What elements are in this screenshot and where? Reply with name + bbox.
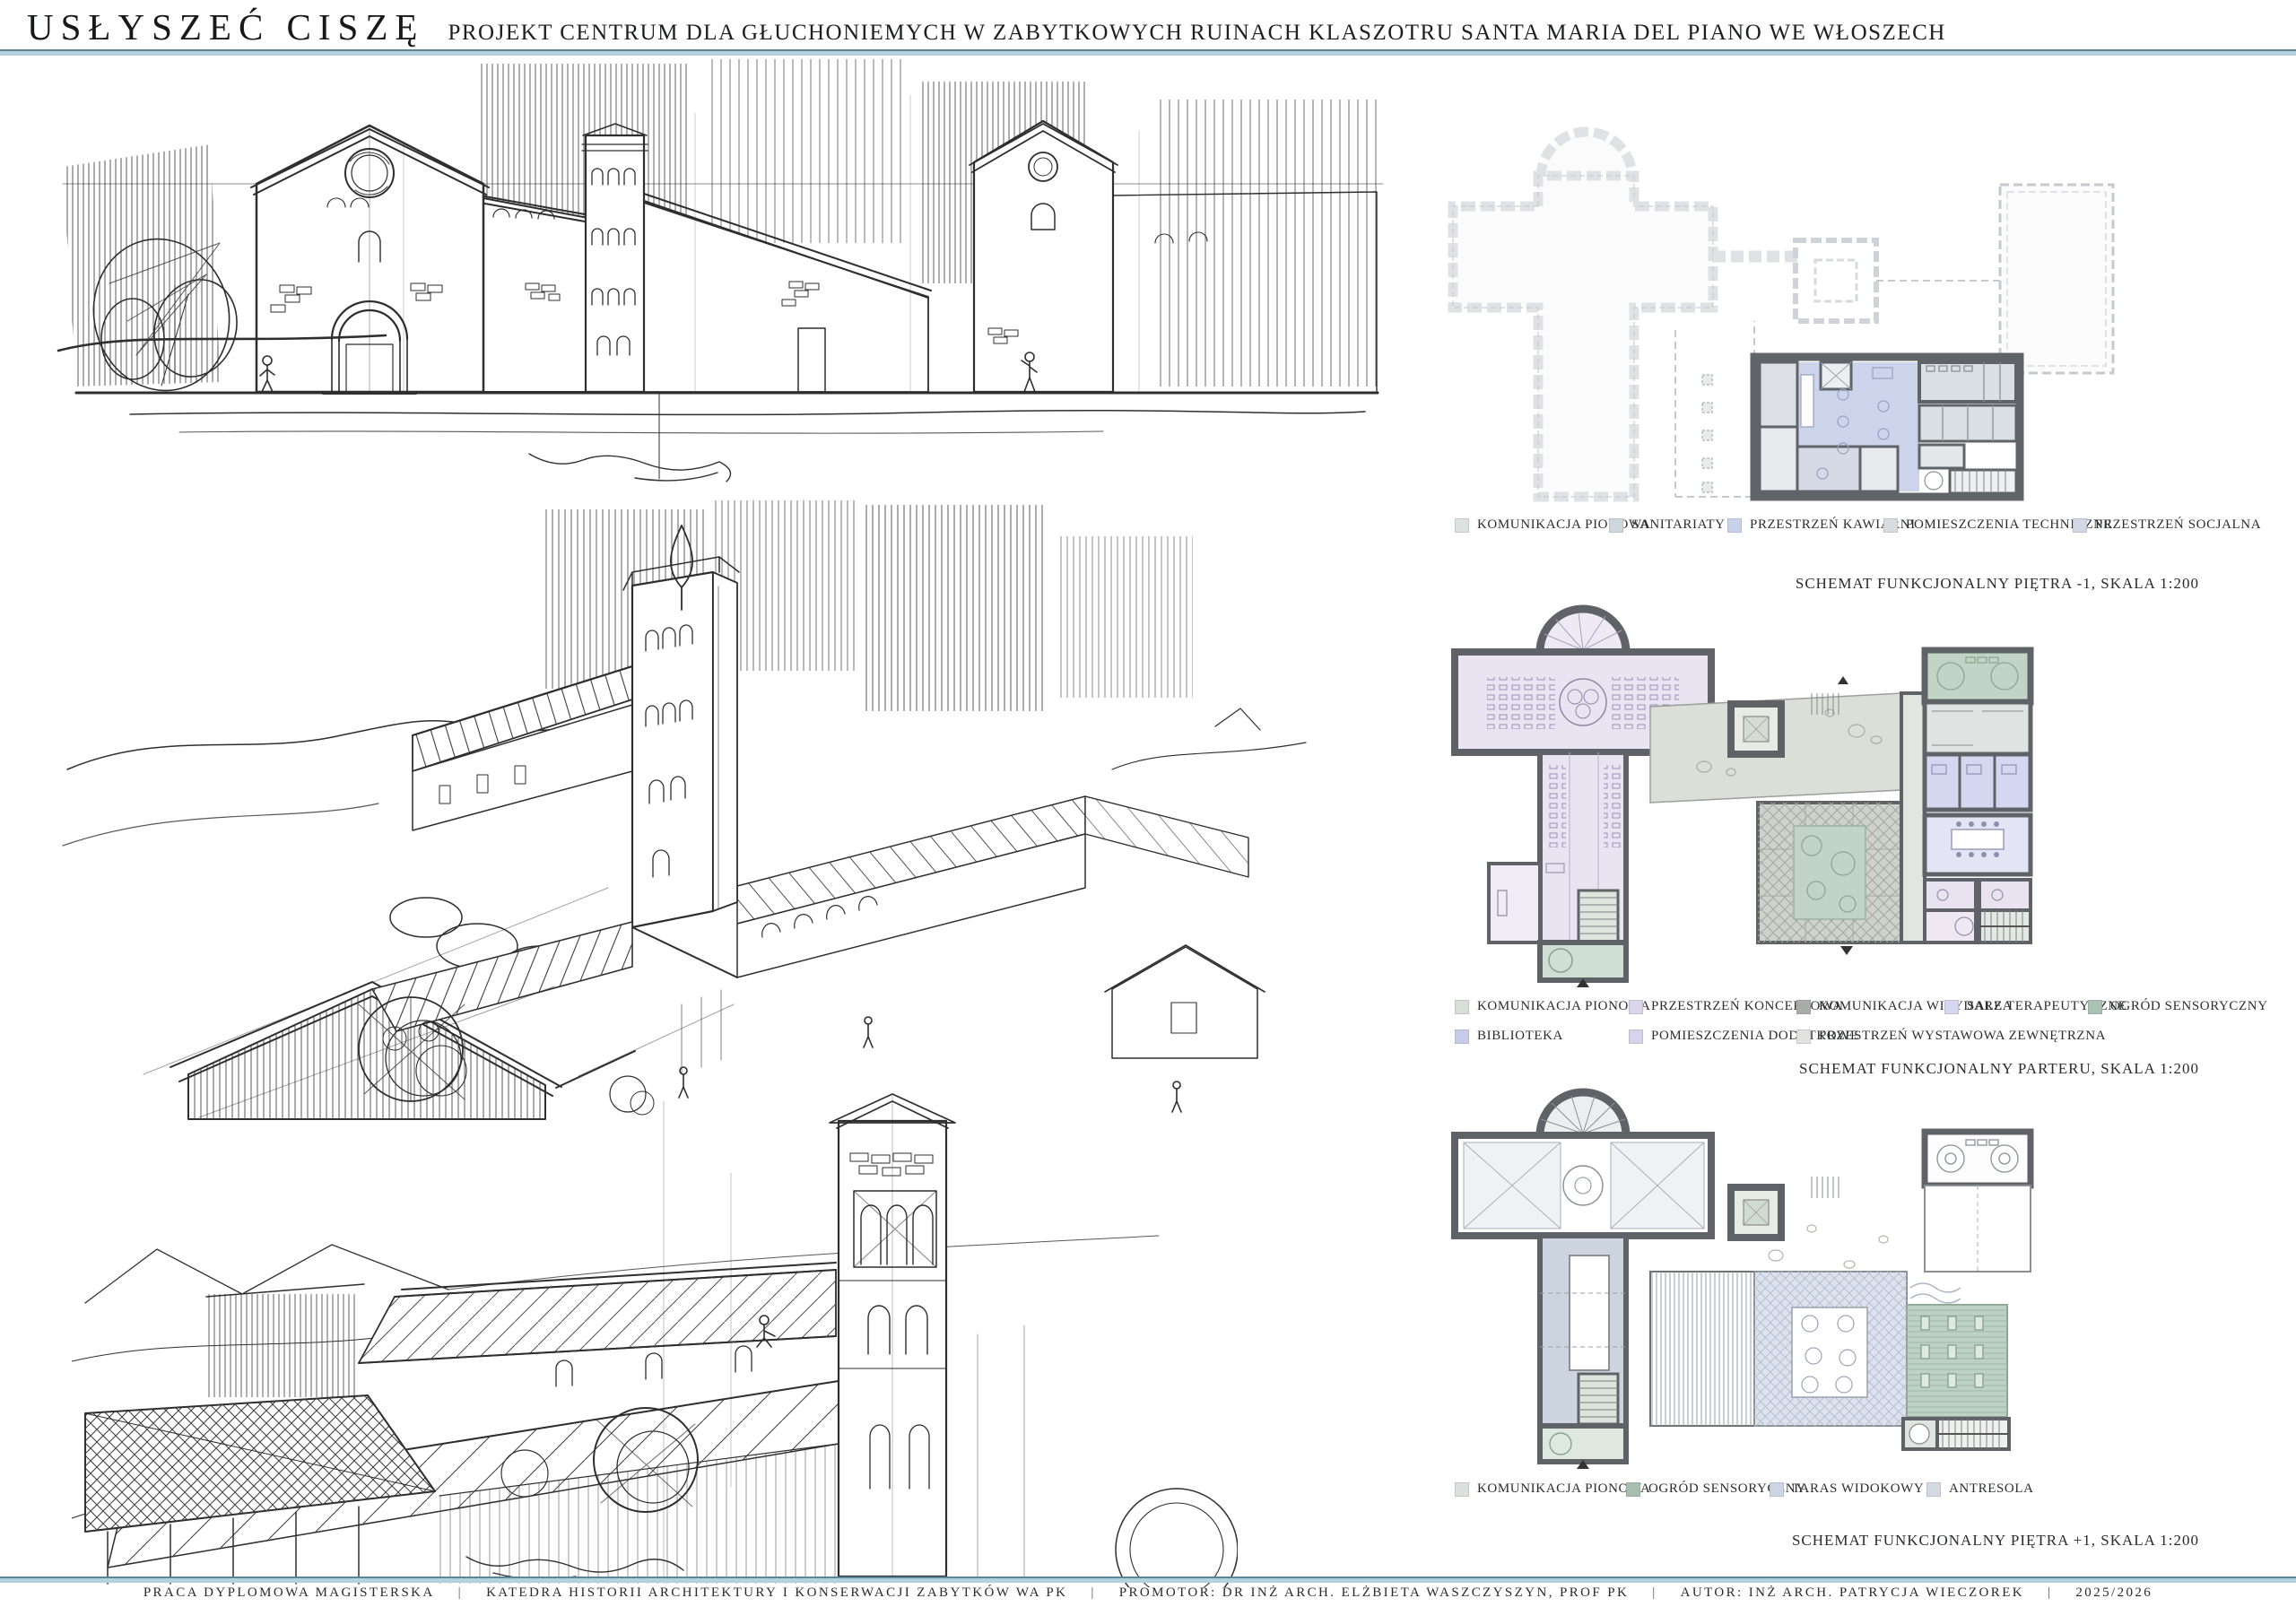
legend-label: PRZESTRZEŃ SOCJALNA bbox=[2095, 517, 2261, 533]
legend-item: POMIESZCZENIA TECHNICZNE bbox=[1883, 517, 2073, 533]
caption-floor-plus1: SCHEMAT FUNKCJONALNY PIĘTRA +1, SKALA 1:… bbox=[1435, 1532, 2296, 1550]
plan-floor-minus1 bbox=[1435, 106, 2206, 505]
legend-label: SANITARIATY bbox=[1631, 517, 1726, 533]
legend-label: KOMUNIKACJA PIONOWA bbox=[1477, 999, 1651, 1014]
plan-floor-plus1 bbox=[1435, 1076, 2260, 1475]
legend-swatch bbox=[1944, 1000, 1959, 1014]
caption-floor-minus1: SCHEMAT FUNKCJONALNY PIĘTRA -1, SKALA 1:… bbox=[1435, 575, 2296, 593]
sketch-elevation bbox=[27, 59, 1399, 512]
legend-item: SANITARIATY bbox=[1609, 517, 1727, 533]
legend-item: SALE TERAPEUTYCZNE bbox=[1944, 999, 2088, 1014]
legend-label: KOMUNIKACJA PIONOWA bbox=[1477, 1481, 1651, 1497]
legend-item: ANTRESOLA bbox=[1926, 1481, 2034, 1497]
legend-swatch bbox=[1629, 1029, 1643, 1044]
sketch-axonometric bbox=[54, 500, 1309, 1121]
footer-credits: PRACA DYPLOMOWA MAGISTERSKA|KATEDRA HIST… bbox=[0, 1585, 2296, 1601]
legend-swatch bbox=[1455, 518, 1469, 533]
legend-swatch bbox=[1926, 1482, 1941, 1497]
legend-swatch bbox=[1883, 518, 1898, 533]
legend-label: ANTRESOLA bbox=[1949, 1481, 2034, 1497]
legend-label: BIBLIOTEKA bbox=[1477, 1029, 1563, 1044]
footer-item-year: 2025/2026 bbox=[2075, 1585, 2152, 1600]
footer-separator: | bbox=[1091, 1585, 1095, 1600]
caption-ground-floor: SCHEMAT FUNKCJONALNY PARTERU, SKALA 1:20… bbox=[1435, 1060, 2296, 1078]
footer-rule bbox=[0, 1577, 2296, 1583]
legend-swatch bbox=[2073, 518, 2087, 533]
legend-ground-floor: KOMUNIKACJA PIONOWA PRZESTRZEŃ KONCERTOW… bbox=[1455, 999, 2268, 1044]
legend-swatch bbox=[1796, 1029, 1811, 1044]
legend-swatch bbox=[1455, 1000, 1469, 1014]
footer-separator: | bbox=[458, 1585, 463, 1600]
legend-item: OGRÓD SENSORYCZNY bbox=[1626, 1481, 1770, 1497]
legend-item: BIBLIOTEKA bbox=[1455, 1029, 1629, 1044]
legend-swatch bbox=[1770, 1482, 1784, 1497]
legend-item: KOMUNIKACJA PIONOWA bbox=[1455, 1481, 1626, 1497]
legend-label: TARAS WIDOKOWY bbox=[1792, 1481, 1924, 1497]
legend-label: PRZESTRZEŃ WYSTAWOWA ZEWNĘTRZNA bbox=[1819, 1029, 2106, 1044]
header-rule bbox=[0, 49, 2296, 56]
legend-item: PRZESTRZEŃ KAWIARNI bbox=[1727, 517, 1883, 533]
sketch-perspective bbox=[72, 1065, 1238, 1587]
legend-swatch bbox=[1455, 1029, 1469, 1044]
footer-item-author: AUTOR: INŻ ARCH. PATRYCJA WIECZOREK bbox=[1681, 1585, 2024, 1600]
legend-floor-plus1: KOMUNIKACJA PIONOWA OGRÓD SENSORYCZNY TA… bbox=[1455, 1481, 2034, 1497]
legend-item: OGRÓD SENSORYCZNY bbox=[2088, 999, 2268, 1014]
legend-item: PRZESTRZEŃ WYSTAWOWA ZEWNĘTRZNA bbox=[1796, 1029, 2088, 1044]
legend-item: KOMUNIKACJA PIONOWA bbox=[1455, 517, 1609, 533]
legend-item: KOMUNIKACJA PIONOWA bbox=[1455, 999, 1629, 1014]
legend-floor-minus1: KOMUNIKACJA PIONOWA SANITARIATY PRZESTRZ… bbox=[1455, 517, 2261, 533]
page-subtitle: PROJEKT CENTRUM DLA GŁUCHONIEMYCH W ZABY… bbox=[448, 21, 1945, 45]
footer-separator: | bbox=[2048, 1585, 2052, 1600]
footer-item-promoter: PROMOTOR: DR INŻ ARCH. ELŻBIETA WASZCZYS… bbox=[1119, 1585, 1630, 1600]
legend-swatch bbox=[1727, 518, 1742, 533]
legend-label: OGRÓD SENSORYCZNY bbox=[2110, 999, 2268, 1014]
legend-swatch bbox=[1796, 1000, 1811, 1014]
legend-item: POMIESZCZENIA DODATKOWE bbox=[1629, 1029, 1796, 1044]
page-title: USŁYSZEĆ CISZĘ bbox=[27, 6, 424, 48]
legend-swatch bbox=[1626, 1482, 1640, 1497]
plan-ground-floor bbox=[1435, 595, 2260, 994]
footer-item-department: KATEDRA HISTORII ARCHITEKTURY I KONSERWA… bbox=[486, 1585, 1067, 1600]
legend-swatch bbox=[2088, 1000, 2102, 1014]
legend-swatch bbox=[1609, 518, 1623, 533]
legend-item: TARAS WIDOKOWY bbox=[1770, 1481, 1926, 1497]
legend-item: PRZESTRZEŃ KONCERTOWA bbox=[1629, 999, 1796, 1014]
legend-item: PRZESTRZEŃ SOCJALNA bbox=[2073, 517, 2261, 533]
presentation-board: USŁYSZEĆ CISZĘPROJEKT CENTRUM DLA GŁUCHO… bbox=[0, 0, 2296, 1607]
legend-swatch bbox=[1629, 1000, 1643, 1014]
footer-item-thesis: PRACA DYPLOMOWA MAGISTERSKA bbox=[143, 1585, 435, 1600]
footer-separator: | bbox=[1652, 1585, 1657, 1600]
legend-swatch bbox=[1455, 1482, 1469, 1497]
legend-item: KOMUNIKACJA WIRYDARZA bbox=[1796, 999, 1944, 1014]
